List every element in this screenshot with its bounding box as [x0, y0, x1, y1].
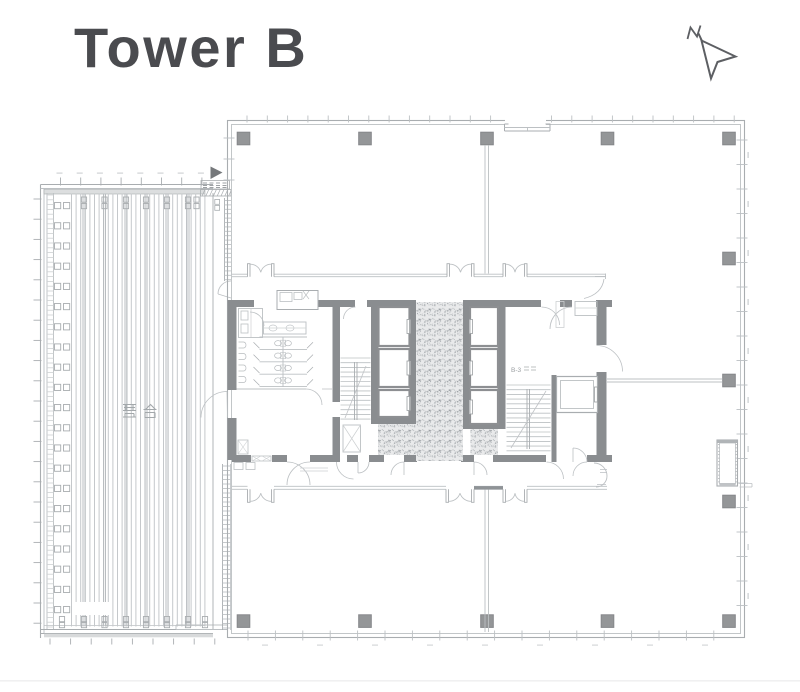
svg-text:Tower B: Tower B — [74, 16, 308, 79]
svg-text:B-3: B-3 — [511, 367, 522, 374]
